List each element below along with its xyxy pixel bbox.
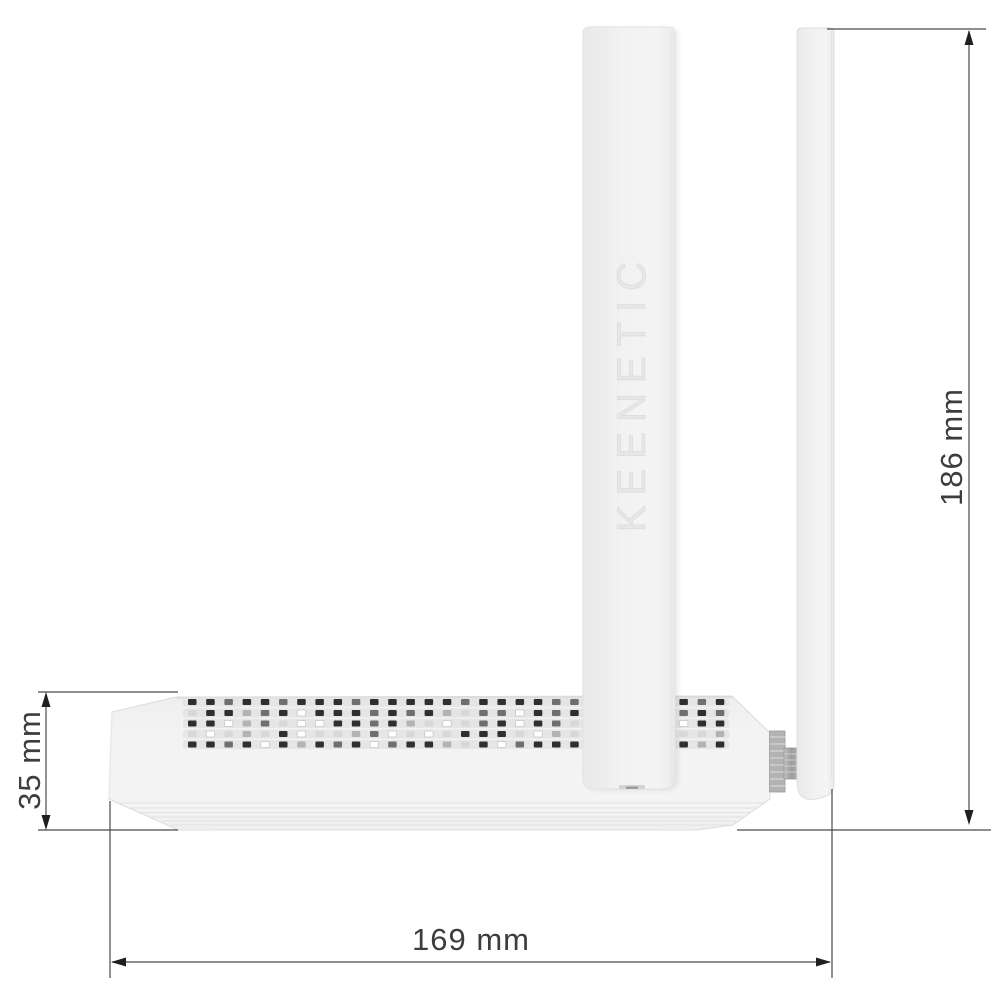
product-dimension-figure: KEENETIC 35 mm 186 mm 169 mm bbox=[0, 0, 1000, 1000]
arrowhead-down bbox=[965, 810, 974, 825]
right-antenna-shape bbox=[797, 28, 834, 800]
arrowhead-left bbox=[111, 958, 126, 967]
arrowhead-up bbox=[965, 30, 974, 45]
center-antenna: KEENETIC bbox=[583, 27, 675, 789]
right-antenna bbox=[797, 28, 834, 800]
body-height-label: 35 mm bbox=[12, 710, 47, 810]
hinge-bracket bbox=[770, 731, 786, 792]
arrowhead-down bbox=[42, 815, 51, 830]
arrowhead-right bbox=[816, 958, 831, 967]
foot-pad-right bbox=[662, 827, 690, 831]
body-depth-label: 169 mm bbox=[412, 922, 530, 957]
foot-pad-left bbox=[182, 827, 212, 831]
antenna-hinge bbox=[770, 731, 800, 792]
center-antenna-notch-slot bbox=[626, 787, 638, 790]
overall-height-label: 186 mm bbox=[934, 388, 969, 506]
brand-embossed-label: KEENETIC bbox=[610, 252, 654, 532]
product-diagram: KEENETIC 35 mm 186 mm 169 mm bbox=[0, 0, 1000, 1000]
arrowhead-up bbox=[42, 692, 51, 707]
